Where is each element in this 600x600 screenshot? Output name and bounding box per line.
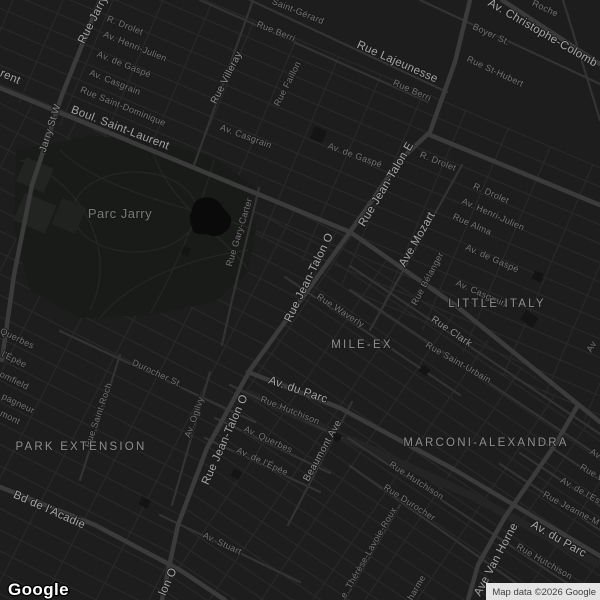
map-canvas[interactable]: R. Drolet Av. Henri-Julien Av. de Gaspé … <box>0 0 600 600</box>
neighborhood-label-little-italy: LITTLE ITALY <box>448 298 546 310</box>
attribution-text: Map data ©2026 Google <box>492 587 596 598</box>
neighborhood-label-mile-ex: MILE-EX <box>331 339 392 351</box>
google-logo[interactable]: Google <box>8 580 69 599</box>
map-attribution: Map data ©2026 Google <box>486 583 600 600</box>
parc-jarry-area <box>13 136 256 318</box>
neighborhood-label-park-extension: PARK EXTENSION <box>16 441 147 453</box>
park-label: Parc Jarry <box>88 206 152 221</box>
neighborhood-label-marconi-alexandra: MARCONI-ALEXANDRA <box>403 437 568 449</box>
